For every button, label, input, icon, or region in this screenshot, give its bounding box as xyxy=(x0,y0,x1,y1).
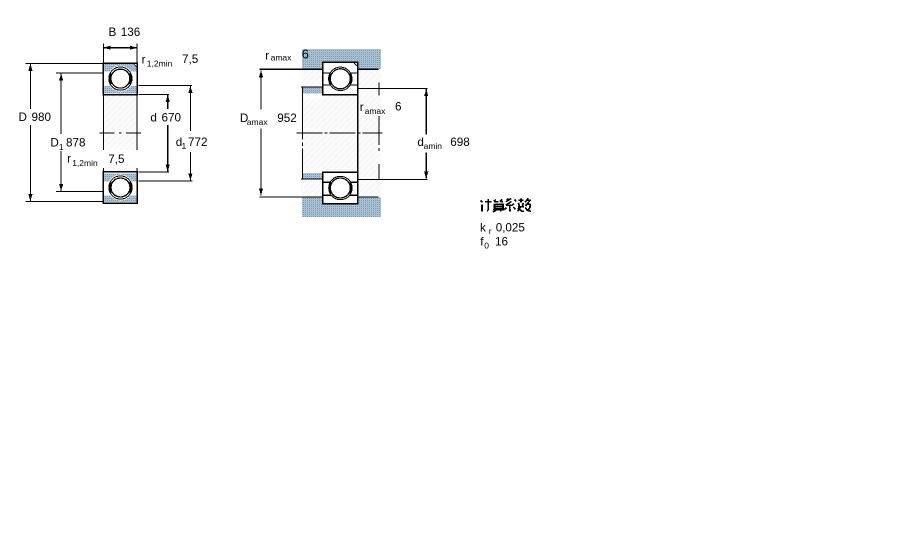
svg-text:698: 698 xyxy=(450,136,470,149)
svg-text:7,5: 7,5 xyxy=(182,53,199,66)
svg-text:D: D xyxy=(19,111,27,124)
svg-text:r: r xyxy=(265,49,269,62)
svg-text:6: 6 xyxy=(395,101,402,114)
svg-text:772: 772 xyxy=(188,136,208,149)
svg-text:r: r xyxy=(360,101,364,114)
svg-text:r: r xyxy=(489,226,492,236)
svg-text:amax: amax xyxy=(247,117,269,127)
svg-text:1,2min: 1,2min xyxy=(147,59,173,69)
svg-text:D: D xyxy=(50,137,58,150)
svg-text:d: d xyxy=(150,112,157,125)
svg-text:136: 136 xyxy=(121,26,141,39)
svg-text:1: 1 xyxy=(59,142,64,152)
svg-text:r: r xyxy=(142,53,146,66)
svg-text:B: B xyxy=(109,26,117,39)
svg-text:878: 878 xyxy=(66,137,86,150)
svg-text:amax: amax xyxy=(365,106,387,116)
svg-text:1,2min: 1,2min xyxy=(72,158,98,168)
svg-text:amax: amax xyxy=(271,52,293,62)
svg-text:k: k xyxy=(480,221,486,234)
svg-text:952: 952 xyxy=(277,112,297,125)
svg-text:980: 980 xyxy=(32,111,52,124)
svg-text:0,025: 0,025 xyxy=(496,221,526,234)
svg-text:670: 670 xyxy=(162,112,182,125)
svg-text:16: 16 xyxy=(495,236,508,249)
svg-text:1: 1 xyxy=(182,141,187,151)
svg-text:0: 0 xyxy=(484,241,489,251)
svg-text:7,5: 7,5 xyxy=(108,153,125,166)
svg-text:6: 6 xyxy=(302,47,309,62)
svg-text:r: r xyxy=(67,153,71,166)
svg-text:amin: amin xyxy=(424,141,443,151)
